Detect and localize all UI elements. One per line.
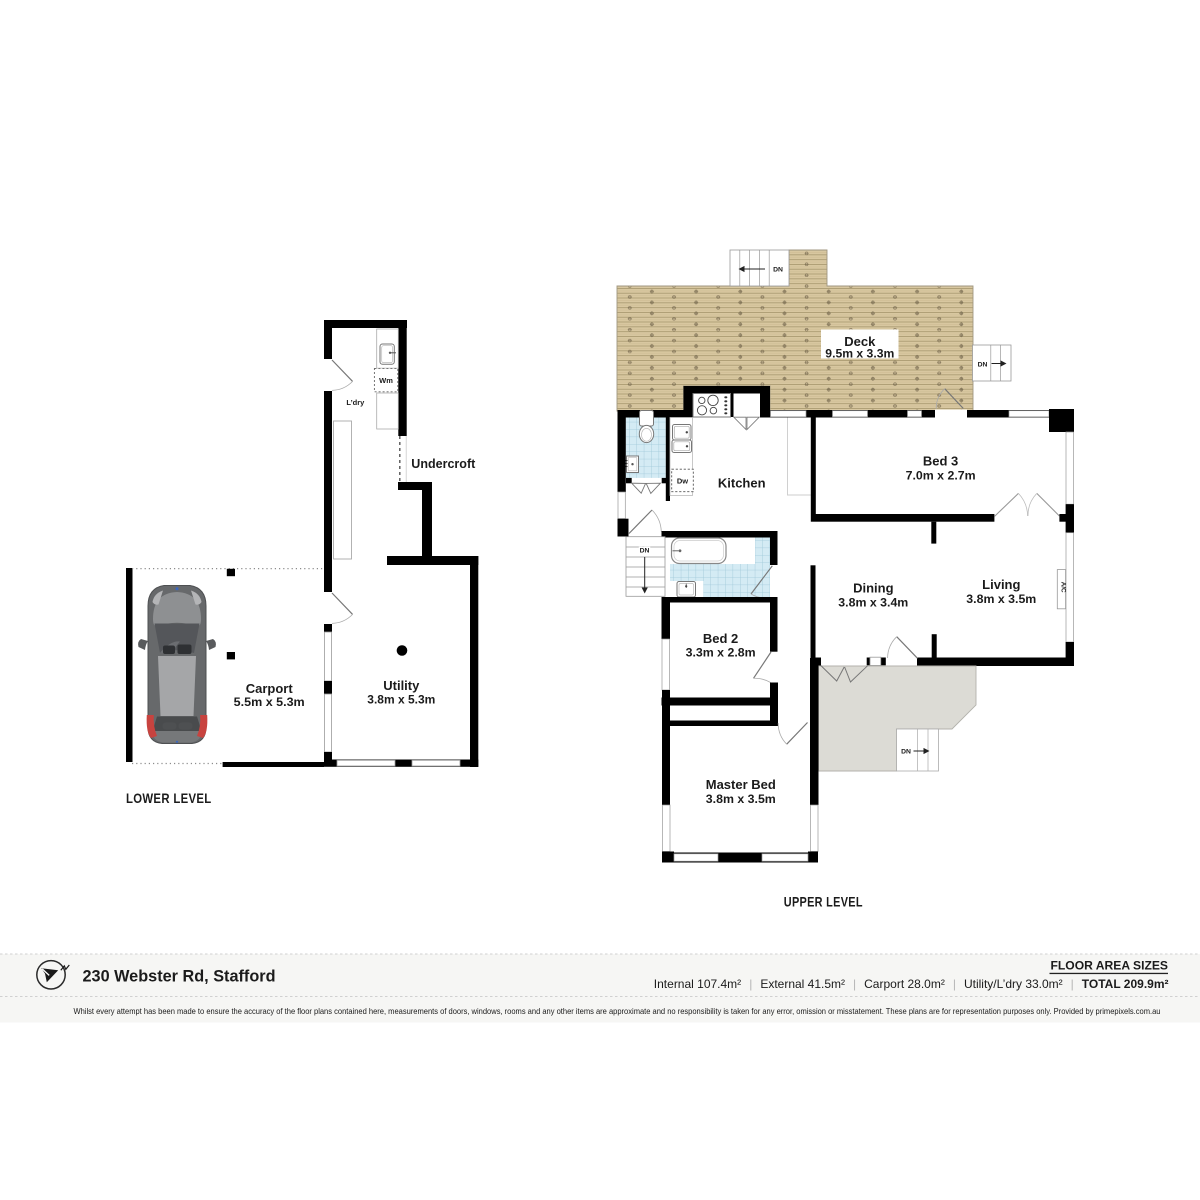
svg-text:LOWER LEVEL: LOWER LEVEL	[126, 790, 212, 806]
svg-text:L’dry: L’dry	[346, 398, 365, 407]
svg-text:DN: DN	[978, 361, 988, 368]
svg-text:DN: DN	[640, 548, 650, 555]
svg-text:3.8m x 3.5m: 3.8m x 3.5m	[706, 794, 776, 806]
svg-text:Dining: Dining	[853, 581, 893, 596]
svg-text:FLOOR AREA SIZES: FLOOR AREA SIZES	[1051, 959, 1169, 973]
svg-text:UPPER LEVEL: UPPER LEVEL	[784, 893, 863, 909]
svg-text:Carport: Carport	[246, 681, 294, 696]
svg-text:Undercroft: Undercroft	[411, 456, 476, 471]
svg-text:5.5m x 5.3m: 5.5m x 5.3m	[234, 697, 305, 709]
svg-text:Deck: Deck	[844, 334, 876, 349]
svg-text:Utility: Utility	[383, 678, 420, 693]
svg-text:9.5m x 3.3m: 9.5m x 3.3m	[825, 349, 894, 361]
svg-text:Wm: Wm	[379, 376, 393, 385]
svg-text:3.3m x 2.8m: 3.3m x 2.8m	[686, 647, 756, 659]
svg-text:3.8m x 5.3m: 3.8m x 5.3m	[367, 695, 435, 707]
svg-text:A/C: A/C	[1060, 582, 1067, 593]
svg-text:Dw: Dw	[677, 476, 688, 485]
svg-text:Bed 3: Bed 3	[923, 454, 958, 469]
svg-text:3.8m x 3.4m: 3.8m x 3.4m	[838, 597, 908, 609]
svg-text:DN: DN	[901, 749, 911, 756]
svg-text:Living: Living	[982, 577, 1020, 592]
svg-text:Whilst every attempt has been: Whilst every attempt has been made to en…	[74, 1006, 1161, 1016]
svg-text:Master Bed: Master Bed	[706, 777, 776, 792]
svg-text:DN: DN	[773, 267, 783, 274]
svg-text:Bed 2: Bed 2	[703, 631, 738, 646]
svg-text:Internal 107.4m²|External 41.5: Internal 107.4m²|External 41.5m²|Carport…	[654, 977, 1169, 991]
svg-text:3.8m x 3.5m: 3.8m x 3.5m	[966, 594, 1036, 606]
svg-text:7.0m x 2.7m: 7.0m x 2.7m	[906, 470, 976, 482]
svg-text:Kitchen: Kitchen	[718, 476, 766, 491]
svg-text:230 Webster Rd, Stafford: 230 Webster Rd, Stafford	[83, 966, 276, 985]
